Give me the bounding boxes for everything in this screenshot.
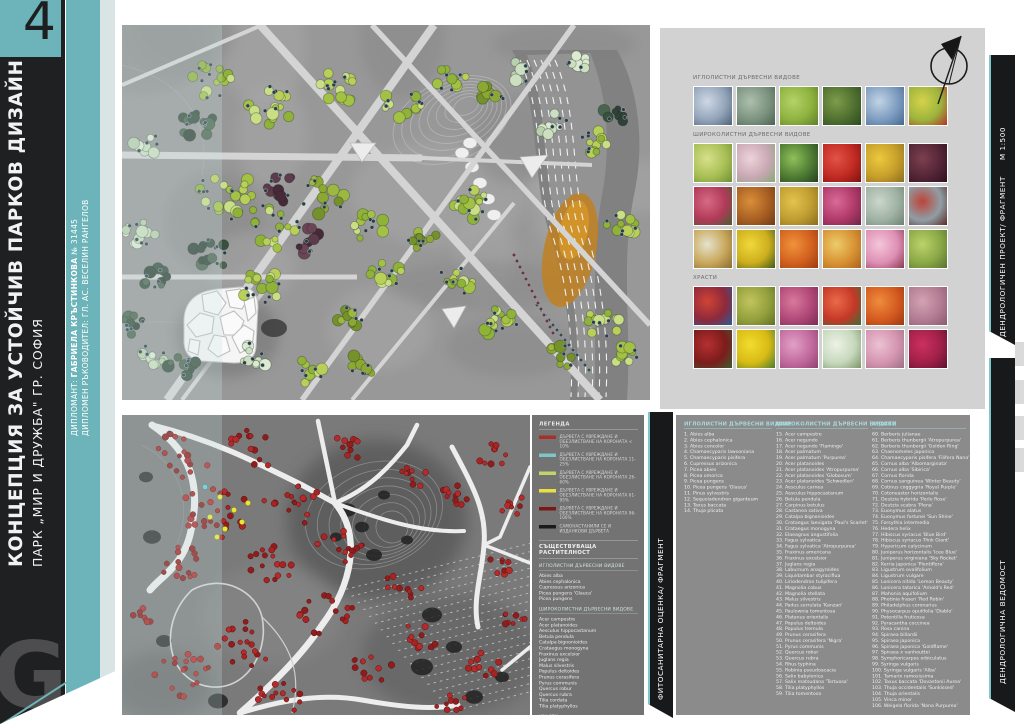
plant-photo: [865, 186, 905, 226]
plant-photo: [865, 86, 905, 126]
masterplan-map: [122, 25, 650, 400]
legend-item: ДЪРВЕТА С УВРЕЖДАНЕ И ОБЕЗЛИСТВАНЕ НА КО…: [539, 506, 638, 520]
legend-item: ДЪРВЕТА С УВРЕЖДАНЕ И ОБЕЗЛИСТВАНЕ НА КО…: [539, 470, 638, 484]
species-item: 21. Acer platanoides 'Atropurpurea': [776, 467, 868, 473]
plant-photo: [736, 229, 776, 269]
plant-photo: [693, 286, 733, 326]
plant-photo: [736, 186, 776, 226]
legend-text: ДЪРВЕТА С УВРЕЖДАНЕ И ОБЕЗЛИСТВАНЕ НА КО…: [560, 435, 639, 449]
title-sub: ПАРК „МИР И ДРУЖБА" ГР. СОФИЯ: [30, 165, 45, 567]
plant-photo: [693, 329, 733, 369]
legend-swatch: [539, 525, 556, 529]
plant-photo: [779, 329, 819, 369]
phytosanitary-map: [122, 415, 530, 715]
plant-photo: [865, 143, 905, 183]
plant-photo: [736, 286, 776, 326]
legend-swatch: [539, 436, 556, 440]
species-item: 85. Lonicera nitida 'Lemon Beauty': [872, 579, 966, 585]
sheet-number-box: 4: [0, 0, 61, 57]
plant-photo: [736, 86, 776, 126]
plant-photo: [779, 86, 819, 126]
credit-label: ДИПЛОМАНТ:: [70, 377, 79, 436]
photo-row: [693, 143, 985, 183]
plant-photo: [779, 143, 819, 183]
species-item: 81. Juniperus virginiana 'Sky Rocket': [872, 555, 966, 561]
legend-item: САМОНАСТАНИЛИ СЕ И ИЗДАНКОВИ ДЪРВЕТА: [539, 524, 638, 534]
plant-photo: [908, 143, 948, 183]
existing-species: Picea pungens: [539, 596, 638, 602]
photo-row: [693, 286, 985, 326]
plant-photo: [822, 229, 862, 269]
legend-swatch: [539, 453, 556, 457]
species-item: 86. Lonicera tatarica 'Arnold's Red': [872, 585, 966, 591]
legend-text: ДЪРВЕТА С УВРЕЖДАНЕ И ОБЕЗЛИСТВАНЕ НА КО…: [560, 488, 639, 502]
plant-photo: [865, 329, 905, 369]
legend-text: САМОНАСТАНИЛИ СЕ И ИЗДАНКОВИ ДЪРВЕТА: [560, 524, 639, 534]
legend-swatch: [539, 507, 556, 511]
teal-overlay: [122, 415, 222, 715]
plant-photo: [822, 86, 862, 126]
legend-item: ДЪРВЕТА С УВРЕЖДАНЕ И ОБЕЗЛИСТВАНЕ НА КО…: [539, 452, 638, 466]
plant-photo: [908, 229, 948, 269]
species-item: 90. Physocarpus opulifolia 'Diablo': [872, 608, 966, 614]
sheet-number: 4: [23, 0, 56, 51]
plant-photo: [693, 86, 733, 126]
species-item: 61. Berberis thunbergii 'Atropurpurea': [872, 437, 966, 443]
bar-dendro-project-label: ДЕНДРОЛОГИЧЕН ПРОЕКТ/ ФРАГМЕНТ: [998, 176, 1007, 337]
existing-species: Tilia platyphyllos: [539, 703, 638, 709]
species-column-inner: ШИРОКОЛИСТНИ ДЪРВЕСНИ ВИДОВЕ15. Acer cam…: [776, 421, 868, 697]
credit-name: ГАБРИЕЛА КРЪСТИНКОВА: [70, 258, 79, 378]
bar-dendro-scale: М 1:500: [998, 127, 1007, 160]
bar-phyto-label: ФИТОСАНИТАРНА ОЦЕНКА/ ФРАГМЕНТ: [656, 538, 665, 700]
plant-photo: [908, 329, 948, 369]
credit-supervisor: ДИПЛОМЕН РЪКОВОДИТЕЛ: ГЛ. АС. ВЕСЕЛИН РА…: [81, 164, 90, 436]
plant-photo: [779, 286, 819, 326]
edge-tick: [1015, 416, 1024, 440]
credits: ДИПЛОМАНТ: ГАБРИЕЛА КРЪСТИНКОВА № 31445 …: [70, 164, 100, 436]
species-item: 14. Thuja plicata: [684, 508, 772, 514]
photo-section-label: ХРАСТИ: [693, 274, 854, 280]
legend-title: ЛЕГЕНДА: [539, 421, 638, 430]
edge-tick: [1015, 448, 1024, 472]
plant-photo: [736, 143, 776, 183]
photo-section-label: ИГЛОЛИСТНИ ДЪРВЕСНИ ВИДОВЕ: [693, 74, 854, 80]
plant-photo: [822, 286, 862, 326]
presentation-board: 4 КОНЦЕПЦИЯ ЗА УСТОЙЧИВ ПАРКОВ ДИЗАЙН ПА…: [0, 0, 1024, 724]
light-band: [100, 0, 115, 724]
legend-text: ДЪРВЕТА С УВРЕЖДАНЕ И ОБЕЗЛИСТВАНЕ НА КО…: [560, 506, 639, 520]
photo-row: [693, 186, 985, 226]
species-item: 59. Tilia tomentosa: [776, 691, 868, 697]
board-title: КОНЦЕПЦИЯ ЗА УСТОЙЧИВ ПАРКОВ ДИЗАЙН ПАРК…: [6, 165, 66, 567]
plant-photo: [865, 286, 905, 326]
existing-vegetation-title: СЪЩЕСТВУВАЩА РАСТИТЕЛНОСТ: [539, 541, 638, 559]
species-item: 30. Crataegus laevigata 'Paul's Scarlet': [776, 520, 868, 526]
photo-row: [693, 329, 985, 369]
existing-group-title: ХРАСТИ: [539, 714, 638, 715]
species-column-inner: ИГЛОЛИСТНИ ДЪРВЕСНИ ВИДОВЕ1. Abies alba2…: [684, 421, 772, 514]
plant-photo: [908, 186, 948, 226]
teal-overlay: [122, 25, 222, 400]
legend-item: ДЪРВЕТА С УВРЕЖДАНЕ И ОБЕЗЛИСТВАНЕ НА КО…: [539, 488, 638, 502]
bar-dendro-register-label: ДЕНДРОЛОГИЧНА ВЕДОМОСТ: [998, 560, 1007, 684]
plant-photo: [822, 186, 862, 226]
plant-photo: [822, 143, 862, 183]
plant-photo: [779, 186, 819, 226]
species-column-header: ИГЛОЛИСТНИ ДЪРВЕСНИ ВИДОВЕ: [684, 421, 772, 429]
edge-tick: [1015, 342, 1024, 366]
plant-photo: [865, 229, 905, 269]
credit-number: № 31445: [70, 219, 79, 258]
plant-photo: [779, 229, 819, 269]
legend-swatch: [539, 489, 556, 493]
species-column: ИГЛОЛИСТНИ ДЪРВЕСНИ ВИДОВЕ1. Abies alba2…: [684, 421, 772, 607]
plant-photo-panel: ИГЛОЛИСТНИ ДЪРВЕСНИ ВИДОВЕШИРОКОЛИСТНИ Д…: [660, 28, 985, 409]
legend-text: ДЪРВЕТА С УВРЕЖДАНЕ И ОБЕЗЛИСТВАНЕ НА КО…: [560, 470, 639, 484]
species-column: ШИРОКОЛИСТНИ ДЪРВЕСНИ ВИДОВЕ15. Acer cam…: [776, 421, 868, 715]
existing-group-title: ИГЛОЛИСТНИ ДЪРВЕСНИ ВИДОВЕ: [539, 564, 638, 571]
pavilion-shadow: [261, 319, 287, 337]
photo-row: [693, 229, 985, 269]
plant-photo: [693, 186, 733, 226]
north-arrow-icon: [921, 30, 979, 108]
title-main: КОНЦЕПЦИЯ ЗА УСТОЙЧИВ ПАРКОВ ДИЗАЙН: [6, 165, 27, 567]
species-item: 80. Juniperus horizontalis 'Icee Blue': [872, 549, 966, 555]
photo-section-label: ШИРОКОЛИСТНИ ДЪРВЕСНИ ВИДОВЕ: [693, 131, 854, 137]
dendrology-register-panel: ИГЛОЛИСТНИ ДЪРВЕСНИ ВИДОВЕ1. Abies alba2…: [676, 415, 970, 715]
plant-photo: [693, 143, 733, 183]
legend-text: ДЪРВЕТА С УВРЕЖДАНЕ И ОБЕЗЛИСТВАНЕ НА КО…: [560, 452, 639, 466]
existing-group-title: ШИРОКОЛИСТНИ ДЪРВЕСНИ ВИДОВЕ: [539, 607, 638, 614]
legend-swatch: [539, 471, 556, 475]
credit-diplomant: ДИПЛОМАНТ: ГАБРИЕЛА КРЪСТИНКОВА № 31445: [70, 164, 79, 436]
plant-photo: [736, 329, 776, 369]
species-column-inner: ХРАСТИ60. Berberis julianae61. Berberis …: [872, 421, 966, 709]
edge-tick: [1015, 380, 1024, 404]
legend-item: ДЪРВЕТА С УВРЕЖДАНЕ И ОБЕЗЛИСТВАНЕ НА КО…: [539, 435, 638, 449]
plant-photo: [908, 286, 948, 326]
plant-photo: [693, 229, 733, 269]
species-item: 106. Weigela florida 'Nana Purpurea': [872, 703, 966, 709]
species-column-header: ХРАСТИ: [872, 421, 966, 429]
legend-panel: ЛЕГЕНДАДЪРВЕТА С УВРЕЖДАНЕ И ОБЕЗЛИСТВАН…: [532, 415, 644, 715]
plant-photo: [822, 329, 862, 369]
species-column-header: ШИРОКОЛИСТНИ ДЪРВЕСНИ ВИДОВЕ: [776, 421, 868, 429]
species-column: ХРАСТИ60. Berberis julianae61. Berberis …: [872, 421, 966, 715]
